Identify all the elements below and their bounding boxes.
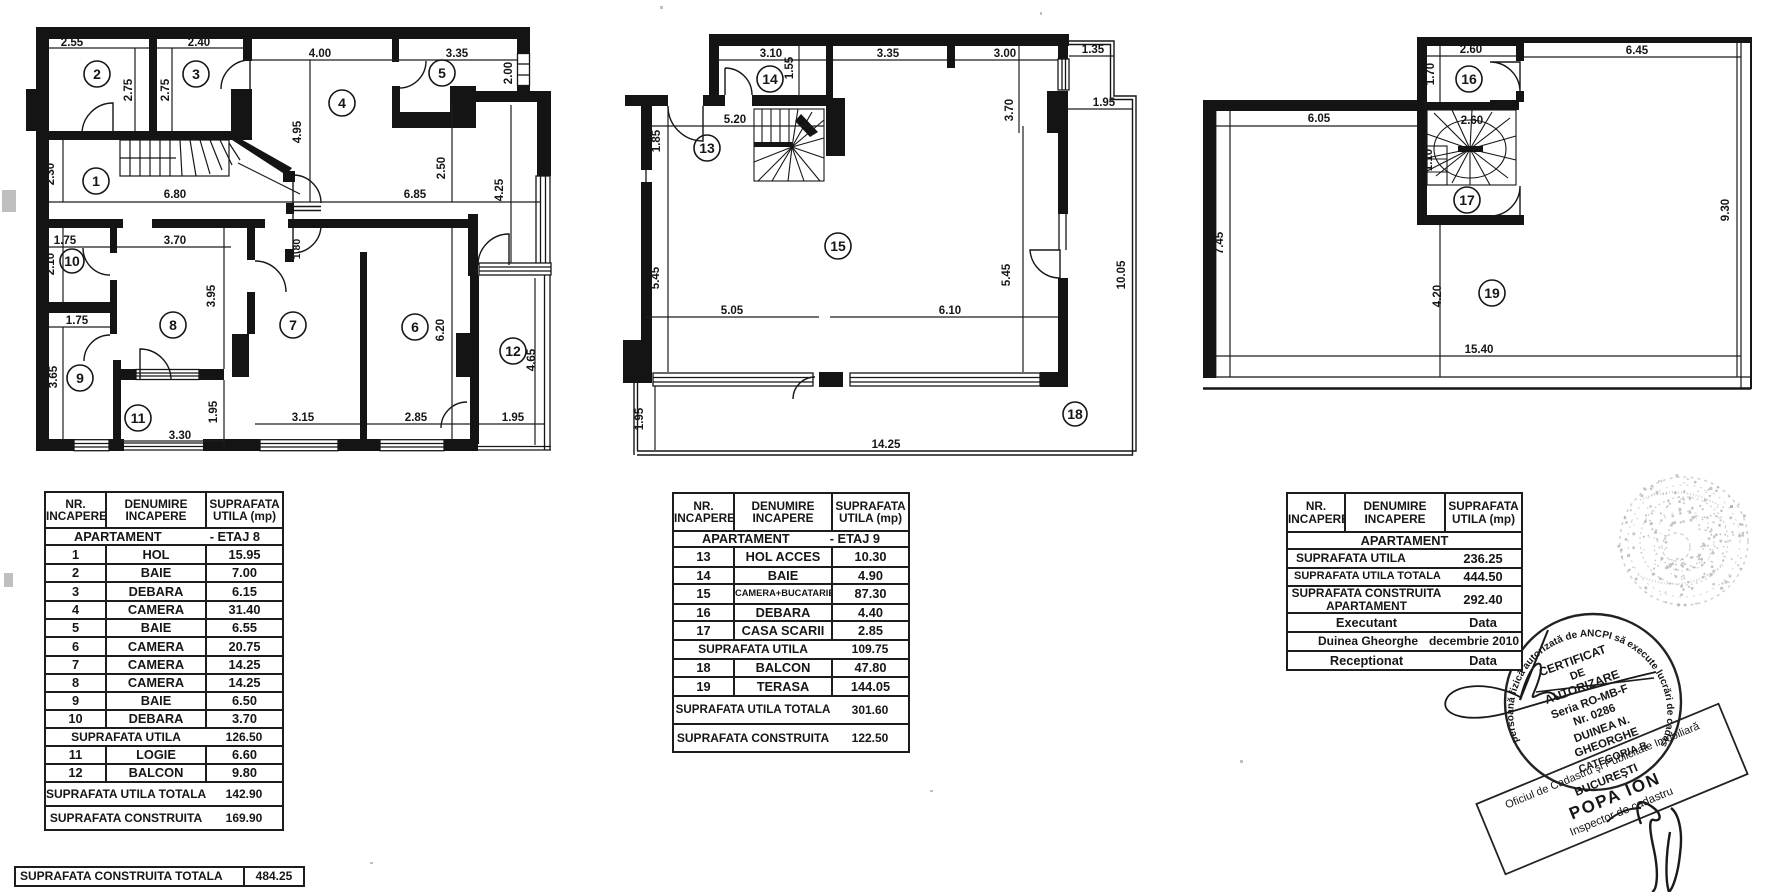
svg-text:14: 14 — [762, 71, 778, 87]
svg-text:2.75: 2.75 — [123, 78, 135, 101]
svg-text:3.10: 3.10 — [760, 48, 782, 60]
svg-text:12: 12 — [505, 343, 521, 359]
svg-text:3: 3 — [192, 66, 200, 82]
svg-text:1.70: 1.70 — [1425, 63, 1437, 85]
svg-text:1.95: 1.95 — [634, 407, 646, 430]
svg-text:6.45: 6.45 — [1626, 45, 1649, 57]
svg-text:11: 11 — [131, 410, 146, 426]
svg-text:14.25: 14.25 — [872, 439, 901, 451]
svg-text:1.75: 1.75 — [54, 235, 77, 247]
svg-text:16: 16 — [1461, 71, 1477, 87]
svg-text:19: 19 — [1484, 285, 1500, 301]
svg-text:15: 15 — [830, 238, 846, 254]
svg-text:4.20: 4.20 — [1432, 285, 1444, 307]
svg-text:3.70: 3.70 — [164, 235, 186, 247]
svg-text:6.85: 6.85 — [404, 189, 427, 201]
svg-text:13: 13 — [699, 140, 715, 156]
svg-text:4.00: 4.00 — [309, 48, 331, 60]
svg-text:2.40: 2.40 — [188, 37, 210, 49]
svg-text:2.50: 2.50 — [436, 157, 448, 179]
svg-text:3.95: 3.95 — [206, 284, 218, 307]
svg-text:2.30: 2.30 — [45, 163, 57, 185]
svg-text:9: 9 — [76, 370, 84, 386]
svg-text:1: 1 — [92, 173, 100, 189]
svg-text:10.05: 10.05 — [1116, 260, 1128, 289]
svg-text:2.60: 2.60 — [1461, 115, 1483, 127]
svg-text:1.95: 1.95 — [208, 400, 220, 423]
svg-text:6.10: 6.10 — [939, 305, 961, 317]
svg-text:15.40: 15.40 — [1465, 344, 1494, 356]
svg-text:3.35: 3.35 — [446, 48, 469, 60]
svg-text:5.05: 5.05 — [721, 305, 744, 317]
svg-text:1.95: 1.95 — [502, 412, 525, 424]
svg-text:3.35: 3.35 — [877, 48, 900, 60]
svg-text:7: 7 — [289, 317, 297, 333]
svg-text:2: 2 — [93, 66, 101, 82]
svg-text:4.25: 4.25 — [494, 178, 506, 201]
svg-text:5: 5 — [438, 65, 446, 81]
svg-text:1.95: 1.95 — [1093, 97, 1116, 109]
svg-text:1.75: 1.75 — [66, 315, 89, 327]
svg-text:6.05: 6.05 — [1308, 113, 1331, 125]
svg-text:4.65: 4.65 — [526, 348, 538, 371]
svg-text:5.20: 5.20 — [724, 114, 746, 126]
svg-text:4: 4 — [338, 95, 346, 111]
svg-text:3.15: 3.15 — [292, 412, 315, 424]
svg-text:17: 17 — [1459, 192, 1475, 208]
svg-text:3.30: 3.30 — [169, 430, 191, 442]
svg-text:6.80: 6.80 — [164, 189, 186, 201]
svg-text:3.65: 3.65 — [48, 365, 60, 388]
svg-text:6.20: 6.20 — [435, 319, 447, 341]
svg-text:2.75: 2.75 — [160, 78, 172, 101]
svg-text:1.55: 1.55 — [784, 56, 796, 79]
svg-text:2.10: 2.10 — [45, 253, 57, 275]
svg-text:6: 6 — [411, 319, 419, 335]
svg-text:10: 10 — [64, 253, 80, 269]
svg-text:18: 18 — [1067, 406, 1083, 422]
svg-text:2.60: 2.60 — [1460, 44, 1482, 56]
svg-text:1.85: 1.85 — [651, 129, 663, 152]
svg-text:5.45: 5.45 — [1001, 263, 1013, 286]
svg-text:7.45: 7.45 — [1214, 231, 1226, 254]
svg-text:3.00: 3.00 — [994, 48, 1016, 60]
svg-text:5.45: 5.45 — [650, 266, 662, 289]
svg-text:4.95: 4.95 — [292, 120, 304, 143]
svg-text:2.00: 2.00 — [503, 62, 515, 84]
svg-text:3.70: 3.70 — [1004, 99, 1016, 121]
svg-text:1.10: 1.10 — [1423, 149, 1435, 171]
svg-text:2.85: 2.85 — [405, 412, 428, 424]
svg-text:1.35: 1.35 — [1082, 44, 1105, 56]
svg-text:1.80: 1.80 — [291, 239, 303, 260]
svg-text:2.55: 2.55 — [61, 37, 84, 49]
svg-text:9.30: 9.30 — [1720, 199, 1732, 221]
svg-text:8: 8 — [169, 317, 177, 333]
